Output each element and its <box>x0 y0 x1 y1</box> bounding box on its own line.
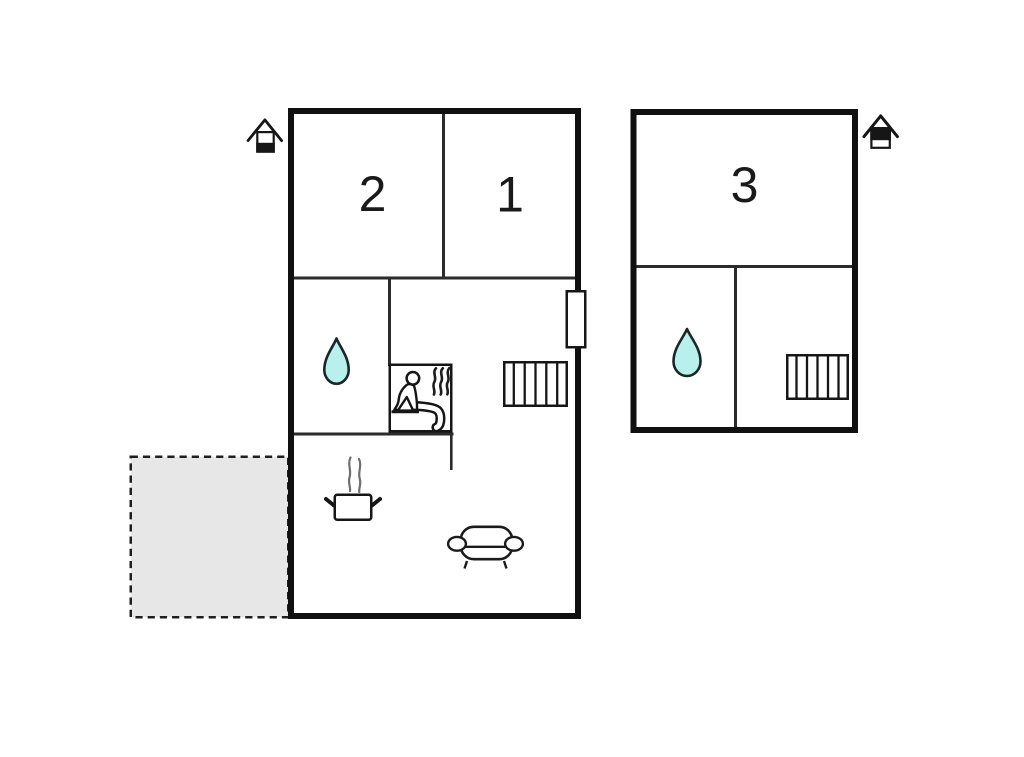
svg-text:3: 3 <box>731 157 759 213</box>
svg-text:2: 2 <box>359 166 387 222</box>
svg-text:1: 1 <box>496 167 524 223</box>
